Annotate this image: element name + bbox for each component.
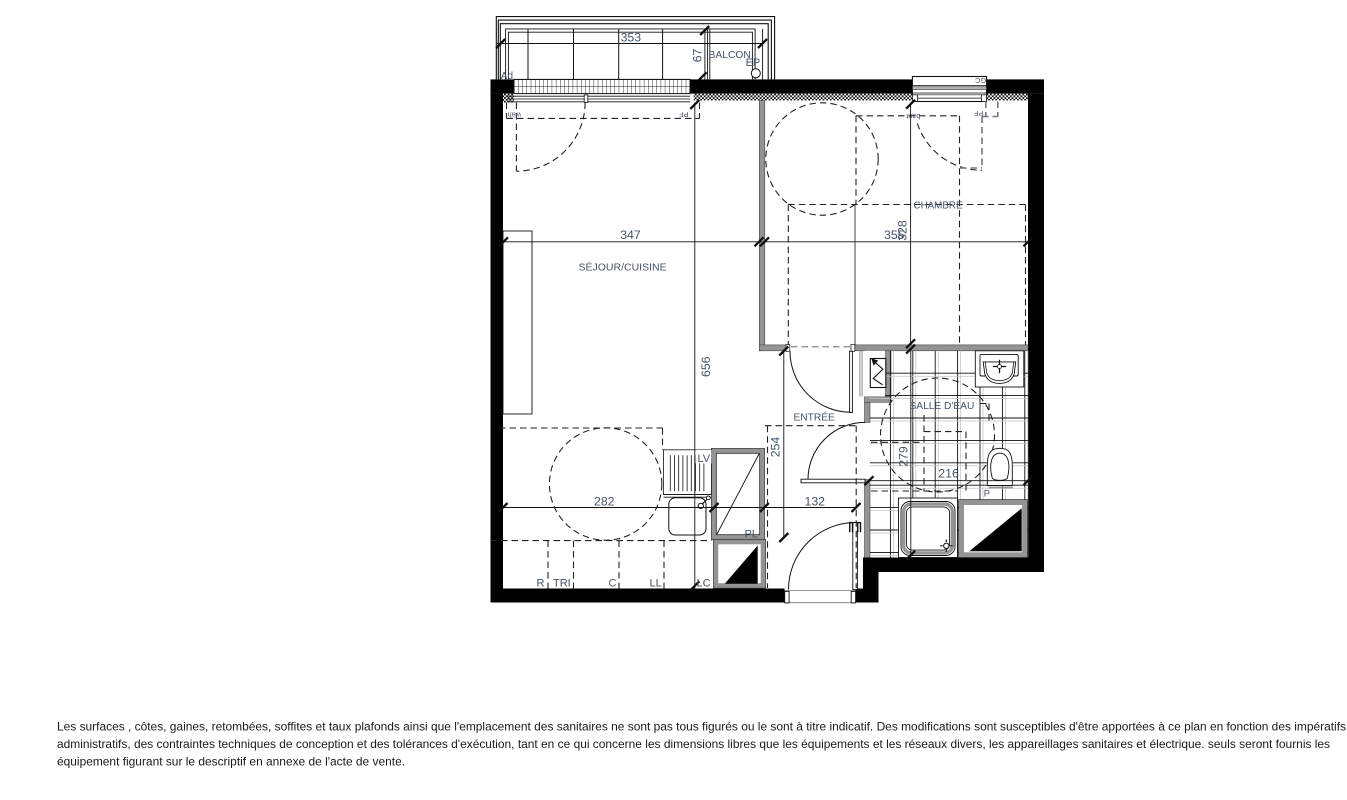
svg-text:EP: EP (746, 57, 761, 69)
svg-text:656: 656 (699, 356, 713, 377)
svg-text:67: 67 (690, 48, 704, 62)
svg-text:132: 132 (805, 495, 826, 509)
svg-text:wah: wah (508, 110, 522, 119)
svg-text:R: R (537, 578, 545, 590)
svg-text:PF: PF (974, 109, 984, 118)
svg-text:équipement figurant sur le des: équipement figurant sur le descriptif en… (57, 755, 405, 769)
svg-text:254: 254 (768, 437, 782, 458)
svg-text:LL: LL (650, 578, 662, 590)
svg-text:P: P (984, 489, 990, 499)
svg-text:ENTRÉE: ENTRÉE (794, 411, 836, 424)
svg-text:GC: GC (975, 76, 986, 85)
svg-text:279: 279 (897, 446, 911, 467)
svg-text:347: 347 (620, 228, 641, 242)
svg-text:SÉJOUR/CUISINE: SÉJOUR/CUISINE (579, 260, 667, 273)
svg-text:administratifs, des contrainte: administratifs, des contraintes techniqu… (57, 737, 1330, 751)
svg-text:SALLE D'EAU: SALLE D'EAU (910, 401, 975, 412)
svg-text:CHAMBRE: CHAMBRE (914, 201, 963, 212)
svg-text:PF: PF (679, 110, 689, 119)
svg-text:LC: LC (697, 578, 711, 590)
svg-text:PL: PL (745, 528, 758, 540)
svg-text:LV: LV (698, 453, 711, 465)
svg-text:328: 328 (895, 220, 909, 241)
svg-text:TRI: TRI (553, 578, 571, 590)
svg-text:bant: bant (906, 112, 920, 121)
svg-text:353: 353 (621, 30, 642, 44)
svg-text:216: 216 (938, 466, 959, 480)
svg-text:Les surfaces , côtes, gaines,: Les surfaces , côtes, gaines, retombées,… (57, 720, 1346, 734)
svg-text:BALCON: BALCON (709, 50, 751, 61)
svg-text:C: C (609, 578, 617, 590)
svg-text:282: 282 (594, 495, 615, 509)
